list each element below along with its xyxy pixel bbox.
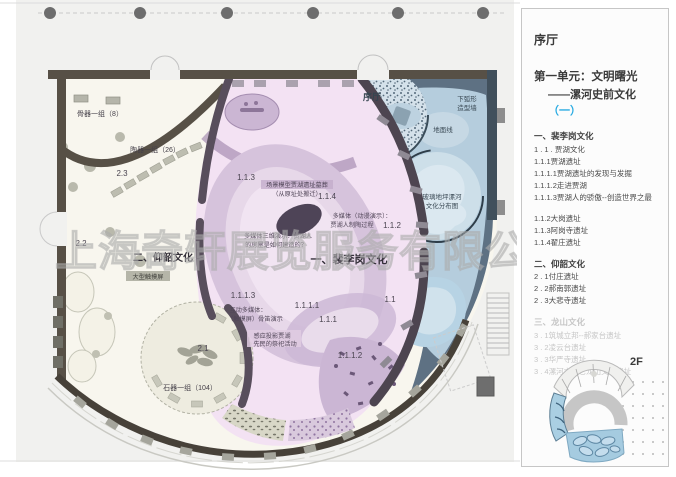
label-glass-floor-1: 玻璃地坪漯河 <box>423 192 463 201</box>
label-scene-model-1: 场景模型贾湖遗址墓葬 <box>266 181 328 189</box>
label-scene-model-2: （从原址处搬迁） <box>272 190 322 198</box>
label-zone-113: 1.1.3 <box>237 173 255 182</box>
table-of-contents: 一、裴李岗文化 1 . 1 . 贾湖文化 1.1.1贾湖遗址 1.1.1.1贾湖… <box>534 130 658 378</box>
minimap <box>536 349 668 467</box>
label-hall: 序厅 <box>363 91 381 102</box>
toc-item: 3 . 1筑城立邦--郝家台遗址 <box>534 330 658 342</box>
label-mm-anim-2: 贾湖人制陶过程 <box>330 221 373 229</box>
toc-item: 1.1.2大岗遗址 <box>534 213 658 225</box>
minimap-grid <box>622 381 664 455</box>
label-zone-11: 1.1 <box>384 295 396 304</box>
label-ground-line: 地面线 <box>433 125 453 134</box>
toc-item: 1.1.1贾湖遗址 <box>534 156 658 168</box>
toc-item: 2 . 2郝南郭遗址 <box>534 283 658 295</box>
label-zone-22: 2.2 <box>75 239 87 248</box>
label-stone-group: 石器一组（104） <box>163 383 217 392</box>
toc-section-2: 二、仰韶文化 <box>534 258 658 272</box>
minimap-svg <box>536 349 668 467</box>
label-sensor-2: 先民的祭祀活动 <box>253 340 296 348</box>
label-mm-3d-1: 多媒体三维演示：贾湖人 <box>244 232 312 240</box>
label-zone-111: 1.1.1 <box>319 315 337 324</box>
toc-section-1: 一、裴李岗文化 <box>534 130 658 144</box>
unit-title-line2: ——漯河史前文化（一） <box>548 86 658 118</box>
minimap-corridor <box>567 397 621 431</box>
label-zone-21: 2.1 <box>197 344 209 353</box>
label-interactive-2: （触摸屏）骨笛演示 <box>227 315 283 323</box>
toc-item: 1 . 1 . 贾湖文化 <box>534 144 658 156</box>
label-bone-group: 骨器一组（8） <box>77 109 123 118</box>
label-mm-3d-2: 的房屋是如何建造的？ <box>245 241 307 249</box>
floor-plan-area: 序厅 骨器一组（8） 陶器一组（26） 2.3 2.2 二、仰韶文化 大型触摸屏… <box>0 0 520 477</box>
label-arc-wall-1: 下弧形 <box>457 94 477 103</box>
unit-title-accent: （一） <box>548 105 581 117</box>
toc-item: 1.1.1.1贾湖遗址的发现与发掘 <box>534 168 658 180</box>
label-zone-1111: 1.1.1.1 <box>295 301 320 310</box>
label-zone-1112: 1.1.1.2 <box>338 351 363 360</box>
toc-item: 2 . 3大悲寺遗址 <box>534 295 658 307</box>
label-peiligang-title: 一、裴李岗文化 <box>311 252 388 266</box>
page: 序厅 骨器一组（8） 陶器一组（26） 2.3 2.2 二、仰韶文化 大型触摸屏… <box>0 0 676 477</box>
panel-title: 序厅 <box>534 31 658 48</box>
toc-section-3: 三、龙山文化 <box>534 316 658 330</box>
label-zone-112: 1.1.2 <box>383 221 401 230</box>
floor-plan: 序厅 骨器一组（8） 陶器一组（26） 2.3 2.2 二、仰韶文化 大型触摸屏… <box>0 0 520 477</box>
elevator <box>477 377 494 396</box>
label-zone-1113: 1.1.1.3 <box>231 291 256 300</box>
toc-item: 1.1.1.3贾湖人的骄傲--创造世界之最 <box>534 192 658 204</box>
toc-item: 1.1.4翟庄遗址 <box>534 237 658 249</box>
legend-panel: 序厅 第一单元：文明曙光 ——漯河史前文化（一） 一、裴李岗文化 1 . 1 .… <box>521 8 669 467</box>
toc-item: 1.1.1.2走进贾湖 <box>534 180 658 192</box>
unit-title-prefix: ——漯河史前文化 <box>548 89 636 101</box>
label-yangshao-title: 二、仰韶文化 <box>133 251 193 264</box>
label-large-touchscreen: 大型触摸屏 <box>133 273 164 281</box>
label-interactive-1: 互动多媒体： <box>229 306 266 314</box>
unit-title-line1: 第一单元：文明曙光 <box>534 68 658 84</box>
label-mm-anim-1: 多媒体（动漫演示）： <box>333 212 392 220</box>
label-glass-floor-2: 文化分布图 <box>426 201 459 210</box>
label-pottery-group: 陶器一组（26） <box>130 145 180 154</box>
label-sensor-1: 感应投影贾湖 <box>253 332 290 340</box>
toc-item: 2 . 1付庄遗址 <box>534 271 658 283</box>
toc-item: 1.1.3阿岗寺遗址 <box>534 225 658 237</box>
label-arc-wall-2: 造型墙 <box>457 103 477 112</box>
label-zone-23: 2.3 <box>116 169 128 178</box>
minimap-highlight-bottom <box>566 429 624 462</box>
